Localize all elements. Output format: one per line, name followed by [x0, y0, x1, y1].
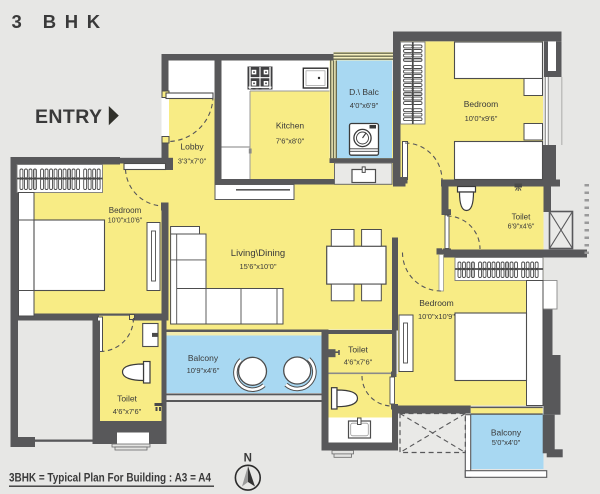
svg-text:Bedroom: Bedroom [419, 298, 454, 308]
svg-text:4'6"x7'6": 4'6"x7'6" [113, 407, 142, 416]
svg-text:Bedroom: Bedroom [464, 99, 499, 109]
svg-text:5'0"x4'0": 5'0"x4'0" [492, 438, 521, 447]
svg-text:ENTRY: ENTRY [35, 106, 102, 128]
svg-text:10'0"x9'6": 10'0"x9'6" [465, 114, 498, 123]
svg-text:15'6"x10'0": 15'6"x10'0" [240, 262, 277, 271]
svg-text:Kitchen: Kitchen [276, 121, 305, 131]
svg-text:B H K: B H K [43, 11, 102, 32]
svg-text:10'0"x10'9": 10'0"x10'9" [418, 312, 455, 321]
svg-text:N: N [244, 452, 252, 464]
svg-text:10'0"x10'6": 10'0"x10'6" [108, 218, 143, 225]
svg-text:3BHK = Typical Plan For Buildi: 3BHK = Typical Plan For Building : A3 = … [9, 471, 211, 485]
svg-text:7'6"x8'0": 7'6"x8'0" [276, 137, 305, 146]
svg-text:6'9"x4'6": 6'9"x4'6" [508, 224, 535, 231]
svg-text:Lobby: Lobby [180, 142, 204, 152]
svg-text:D.\ Balc: D.\ Balc [349, 87, 380, 97]
svg-text:10'9"x4'6": 10'9"x4'6" [187, 366, 220, 375]
svg-text:4'0"x6'9": 4'0"x6'9" [350, 101, 379, 110]
svg-text:Balcony: Balcony [491, 428, 522, 438]
svg-text:Toilet: Toilet [117, 394, 137, 404]
svg-text:3: 3 [12, 11, 22, 32]
svg-text:4'6"x7'6": 4'6"x7'6" [344, 358, 373, 367]
svg-text:Bedroom: Bedroom [109, 206, 142, 215]
svg-text:Toilet: Toilet [512, 213, 531, 222]
svg-text:Balcony: Balcony [188, 353, 219, 363]
svg-text:Toilet: Toilet [348, 345, 368, 355]
svg-text:3'3"x7'0": 3'3"x7'0" [178, 157, 207, 166]
svg-text:Living\Dining: Living\Dining [231, 248, 285, 259]
